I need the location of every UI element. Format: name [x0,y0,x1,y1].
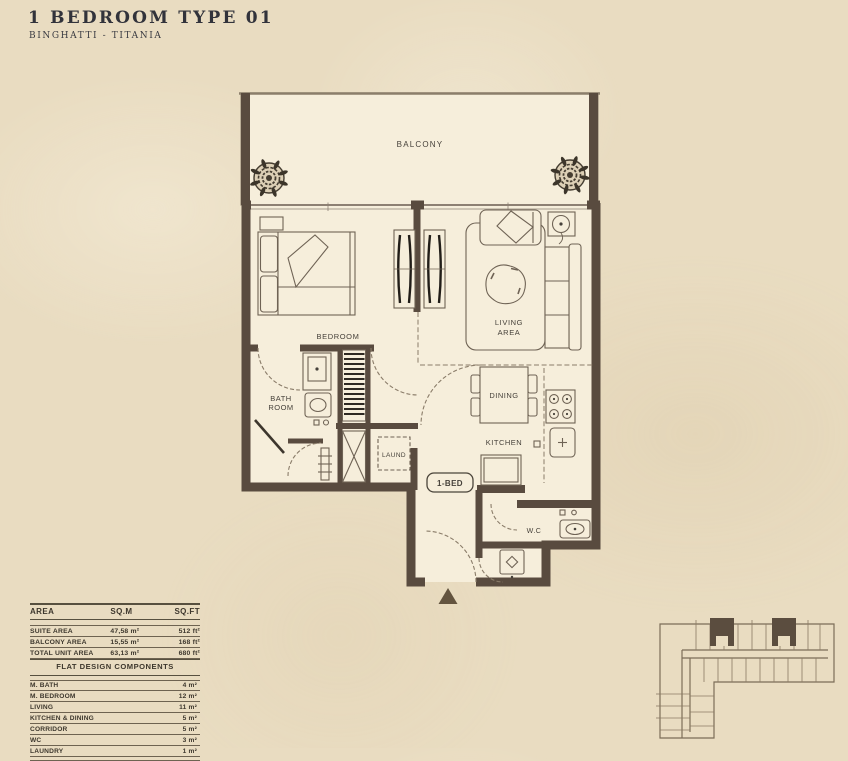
wc-label: W.C [527,528,542,535]
sofa-seats [545,247,569,348]
kitchen-label: KITCHEN [486,438,522,447]
vanity [303,353,331,390]
balcony-label: BALCONY [397,140,444,149]
table-row: LAUNDRY 1 m² [30,746,200,757]
floor-plan: BALCONY [228,80,618,620]
components-table-title: FLAT DESIGN COMPONENTS [30,658,200,676]
row-value: 11 m² [179,704,200,711]
key-plan [652,612,845,743]
dining-label: DINING [489,391,518,400]
bedroom-label: BEDROOM [317,332,360,341]
table-row: SUITE AREA 47,58 m² 512 ft² [30,626,200,637]
unit-type-badge: 1-BED [427,473,473,492]
balcony: BALCONY [239,93,600,205]
row-label: LIVING [30,704,53,711]
sofa-back [569,244,581,350]
table-row: M. BATH 4 m² [30,681,200,692]
living-label-1: LIVING [495,318,523,327]
row-value: 12 m² [179,693,200,700]
page-subtitle: BINGHATTI - TITANIA [29,31,274,41]
page-title: 1 BEDROOM TYPE 01 [28,8,274,28]
table-row: BALCONY AREA 15,55 m² 168 ft² [30,637,200,648]
table-row: LIVING 11 m² [30,702,200,713]
kitchen-counter [481,455,521,485]
table-row: WC 3 m² [30,735,200,746]
row-sqft: 168 ft² [164,639,200,646]
row-sqft: 680 ft² [164,650,200,657]
bathroom-label-1: BATH [270,394,291,403]
row-label: LAUNDRY [30,748,63,755]
row-sqft: 512 ft² [164,628,200,635]
col-header-sqm: SQ.M [110,607,164,616]
row-label: M. BEDROOM [30,693,76,700]
row-label: BALCONY AREA [30,639,110,646]
row-value: 4 m² [183,682,200,689]
highlighted-unit [710,618,796,646]
row-value: 1 m² [183,748,200,755]
table-row: CORRIDOR 5 m² [30,724,200,735]
bathroom-label-2: ROOM [268,403,293,412]
row-label: KITCHEN & DINING [30,715,94,722]
stove [546,390,575,423]
unit-type-label: 1-BED [437,479,463,488]
row-label: M. BATH [30,682,58,689]
dining-chair [471,398,480,416]
table-row: KITCHEN & DINING 5 m² [30,713,200,724]
row-label: WC [30,737,41,744]
row-label: TOTAL UNIT AREA [30,650,110,657]
row-label: CORRIDOR [30,726,68,733]
laundry-label: LAUND [382,452,406,459]
dining-chair [528,398,537,416]
table-row: M. BEDROOM 12 m² [30,691,200,702]
living-label-2: AREA [498,328,521,337]
shaft-closet [343,431,366,482]
wc-toilet [500,550,524,574]
components-table: FLAT DESIGN COMPONENTS M. BATH 4 m² M. B… [30,658,200,761]
area-table: AREA SQ.M SQ.FT SUITE AREA 47,58 m² 512 … [30,603,200,660]
dining-chair [471,375,480,393]
entrance-arrow [439,588,458,604]
row-value: 5 m² [183,715,200,722]
row-label: SUITE AREA [30,628,110,635]
row-sqm: 15,55 m² [110,639,164,646]
row-sqm: 47,58 m² [110,628,164,635]
col-header-sqft: SQ.FT [164,607,200,616]
page-header: 1 BEDROOM TYPE 01 BINGHATTI - TITANIA [28,8,274,41]
toilet [305,393,331,417]
row-sqm: 63,13 m² [110,650,164,657]
dining-chair [528,375,537,393]
area-table-header: AREA SQ.M SQ.FT [30,603,200,620]
row-value: 5 m² [183,726,200,733]
row-value: 3 m² [183,737,200,744]
col-header-area: AREA [30,607,110,616]
shelving-closet [343,350,366,421]
